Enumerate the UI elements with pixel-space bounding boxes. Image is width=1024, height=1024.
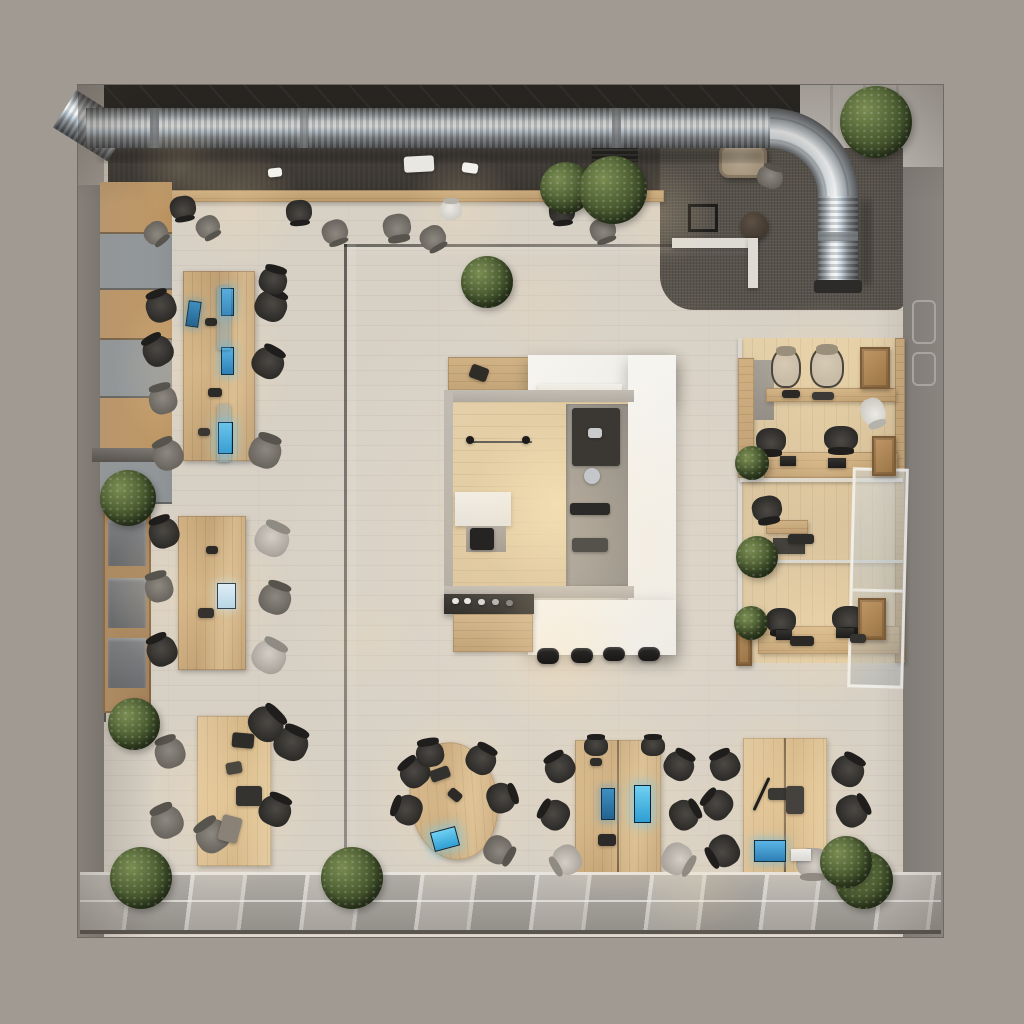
island-frame-beam (444, 390, 634, 402)
glass-door (847, 467, 909, 688)
bench-desk-left-upper (183, 271, 255, 461)
locker-panel (100, 398, 172, 450)
locker-panel (100, 182, 172, 234)
desk-divider (617, 740, 619, 890)
top-counter-ledge (112, 190, 664, 202)
storage-bin (108, 520, 146, 566)
locker-handle (92, 448, 162, 462)
wall-reflection (912, 352, 936, 386)
bench-desk-left-middle (178, 516, 246, 670)
island-white-roof (528, 600, 676, 655)
cubicle-shelf (766, 520, 808, 534)
pendant-wire (470, 441, 532, 443)
bottom-glazed-wall (80, 872, 941, 934)
island-black-bar (444, 594, 534, 614)
low-white-wall (748, 238, 758, 288)
desk-divider (784, 738, 786, 884)
glass-reflection (347, 244, 356, 932)
lounge-armchair (719, 144, 767, 178)
island-gray-counter (466, 526, 506, 552)
table-bottom-left (197, 716, 271, 866)
locker-panel (100, 290, 172, 340)
storage-bin (108, 578, 146, 628)
desk-item (773, 538, 805, 554)
island-frame-beam (444, 390, 453, 608)
locker-panel (100, 234, 172, 290)
vent-grille-icon (592, 146, 638, 162)
lounge-round-table (740, 212, 768, 240)
left-wall-top (78, 85, 104, 185)
right-wall-top (903, 85, 943, 167)
cubicle-desk (766, 388, 896, 402)
office-top-view-render (0, 0, 1024, 1024)
glass-reflection (344, 247, 758, 255)
island-bar-shelf (453, 614, 533, 652)
wall-reflection (912, 300, 936, 344)
island-coffee-counter (566, 404, 628, 586)
right-wall (903, 85, 943, 937)
storage-bin (108, 638, 146, 688)
locker-panel (100, 340, 172, 398)
lounge-side-table (688, 204, 718, 232)
low-white-wall (672, 238, 758, 248)
wood-cabinet (738, 358, 754, 478)
acoustic-wall-panel (108, 138, 666, 194)
island-white-cabinet (455, 492, 511, 526)
